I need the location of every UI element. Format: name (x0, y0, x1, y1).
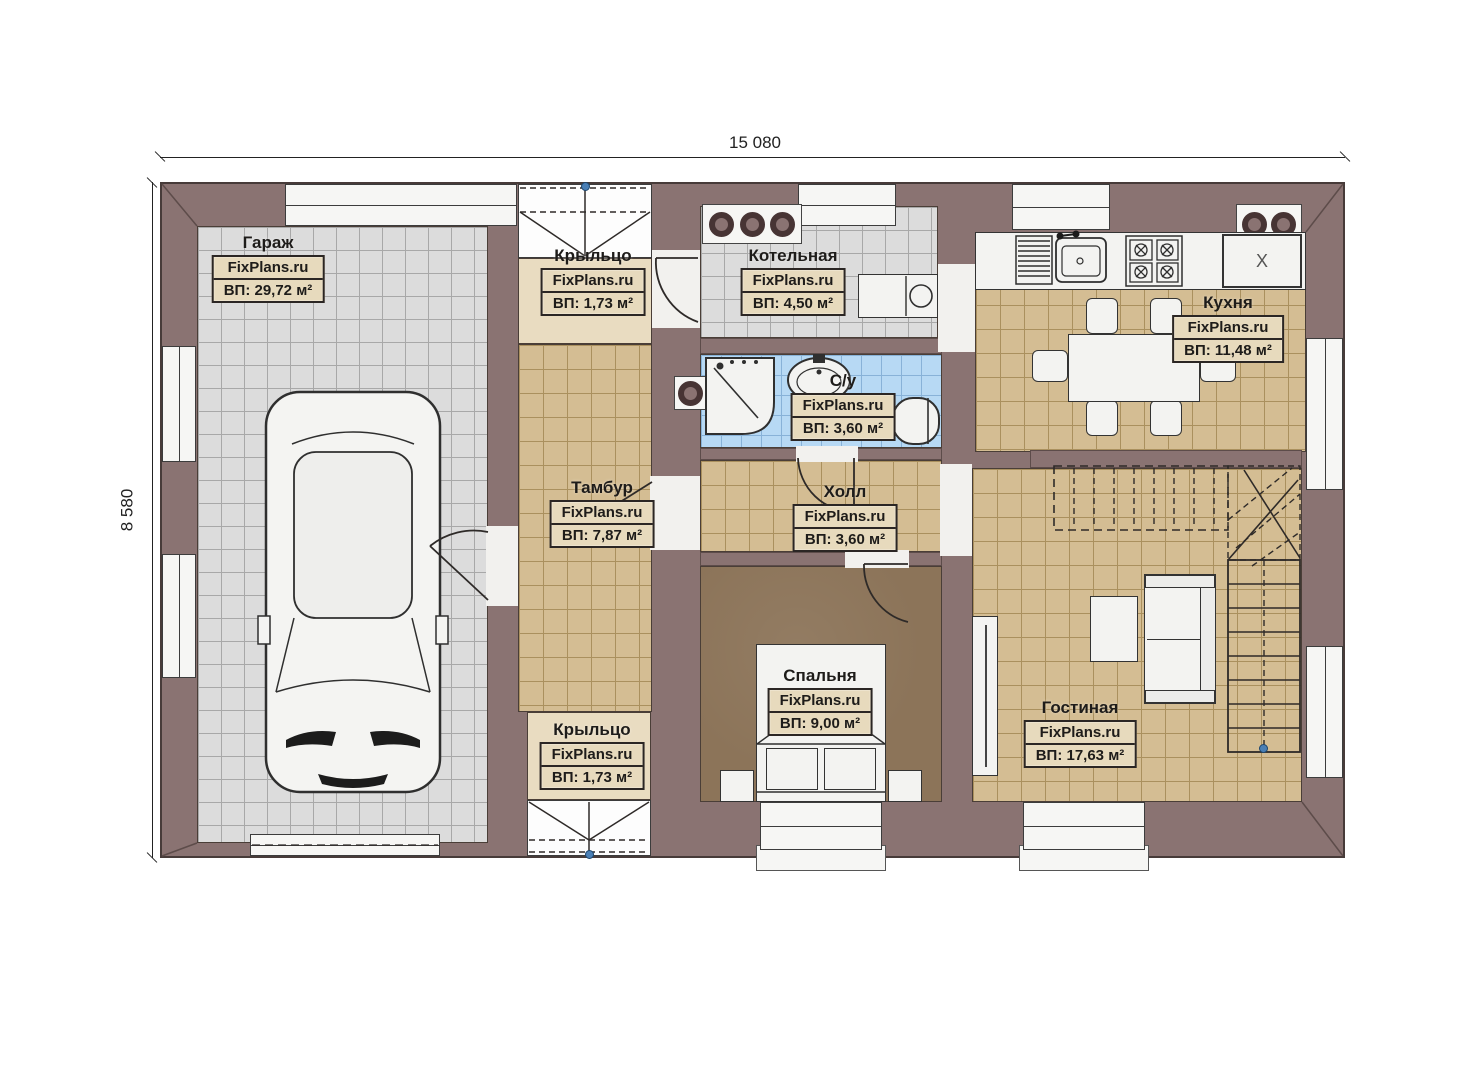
vent-icon (770, 212, 795, 237)
room-name: Крыльцо (540, 720, 645, 740)
dimension-line-top (160, 157, 1345, 158)
vent-icon (709, 212, 734, 237)
watermark: FixPlans.ru (795, 506, 896, 527)
pillow (766, 748, 818, 790)
doorway-bedroom (845, 550, 909, 568)
room-label-kitchen: Кухня FixPlans.ru ВП: 11,48 м² (1172, 293, 1284, 363)
pillow (824, 748, 876, 790)
room-label-living: Гостиная FixPlans.ru ВП: 17,63 м² (1024, 698, 1137, 768)
room-label-garage: Гараж FixPlans.ru ВП: 29,72 м² (212, 233, 325, 303)
room-label-bedroom: Спальня FixPlans.ru ВП: 9,00 м² (768, 666, 873, 736)
stair-marker (585, 850, 594, 859)
chair (1032, 350, 1068, 382)
room-name: Кухня (1172, 293, 1284, 313)
doorway-entry (652, 250, 700, 328)
room-area: ВП: 1,73 м² (542, 765, 643, 788)
window-garage-left-2 (162, 554, 196, 678)
sofa-armrest (1145, 690, 1215, 703)
room-name: Спальня (768, 666, 873, 686)
window-garage-top (285, 184, 517, 226)
window-living-bottom (1023, 802, 1145, 850)
room-area: ВП: 3,60 м² (795, 527, 896, 550)
watermark: FixPlans.ru (542, 744, 643, 765)
watermark: FixPlans.ru (770, 690, 871, 711)
room-label-porch-top: Крыльцо FixPlans.ru ВП: 1,73 м² (541, 246, 646, 316)
window-kitchen-right (1306, 338, 1343, 490)
window-boiler-top (798, 184, 896, 226)
room-label-bathroom: С/у FixPlans.ru ВП: 3,60 м² (791, 371, 896, 441)
watermark: FixPlans.ru (543, 270, 644, 291)
room-area: ВП: 4,50 м² (743, 291, 844, 314)
sofa-back (1200, 575, 1215, 703)
wall-boiler-bathroom (700, 338, 942, 354)
coffee-table (1090, 596, 1138, 662)
room-area: ВП: 17,63 м² (1026, 743, 1135, 766)
fridge: X (1222, 234, 1302, 288)
room-label-boiler: Котельная FixPlans.ru ВП: 4,50 м² (741, 246, 846, 316)
room-name: Гостиная (1024, 698, 1137, 718)
dimension-width-label: 15 080 (700, 133, 810, 153)
tv-panel (972, 616, 998, 776)
nightstand (720, 770, 754, 802)
window-kitchen-top (1012, 184, 1110, 230)
room-name: Котельная (741, 246, 846, 266)
watermark: FixPlans.ru (793, 395, 894, 416)
room-area: ВП: 29,72 м² (214, 278, 323, 301)
wall-kitchen-living (1030, 450, 1302, 468)
window-living-right (1306, 646, 1343, 778)
floor-plan: 15 080 8 580 (0, 0, 1473, 1080)
doorway-vestibule-hall (650, 476, 700, 550)
porch-bottom-stairs (527, 800, 651, 856)
doorway-garage (486, 526, 518, 606)
room-area: ВП: 1,73 м² (543, 291, 644, 314)
sofa-armrest (1145, 575, 1215, 588)
dimension-line-left (152, 182, 153, 858)
nightstand (888, 770, 922, 802)
boiler-equipment (858, 274, 938, 318)
room-name: Крыльцо (541, 246, 646, 266)
garage-door (250, 834, 440, 856)
stair-marker (581, 182, 590, 191)
sofa-seam (1147, 639, 1201, 640)
tv-panel-line (985, 625, 987, 767)
vent-icon (740, 212, 765, 237)
chair (1086, 400, 1118, 436)
stair-marker (1259, 744, 1268, 753)
room-area: ВП: 7,87 м² (552, 523, 653, 546)
watermark: FixPlans.ru (552, 502, 653, 523)
room-name: Тамбур (550, 478, 655, 498)
room-label-vestibule: Тамбур FixPlans.ru ВП: 7,87 м² (550, 478, 655, 548)
watermark: FixPlans.ru (214, 257, 323, 278)
doorway-bathroom (796, 446, 858, 462)
room-info-box: FixPlans.ru ВП: 3,60 м² (793, 504, 898, 552)
opening-hall-living (940, 464, 972, 556)
room-info-box: FixPlans.ru ВП: 29,72 м² (212, 255, 325, 303)
vent-block-boiler (702, 204, 802, 244)
room-info-box: FixPlans.ru ВП: 7,87 м² (550, 500, 655, 548)
room-info-box: FixPlans.ru ВП: 17,63 м² (1024, 720, 1137, 768)
sofa (1144, 574, 1216, 704)
room-info-box: FixPlans.ru ВП: 1,73 м² (541, 268, 646, 316)
room-name: Холл (793, 482, 898, 502)
room-area: ВП: 3,60 м² (793, 416, 894, 439)
vent-icon (678, 381, 703, 406)
room-area: ВП: 11,48 м² (1174, 338, 1282, 361)
room-area: ВП: 9,00 м² (770, 711, 871, 734)
chair (1086, 298, 1118, 334)
room-label-hall: Холл FixPlans.ru ВП: 3,60 м² (793, 482, 898, 552)
fridge-mark: X (1256, 251, 1268, 272)
window-garage-left-1 (162, 346, 196, 462)
chair (1150, 400, 1182, 436)
room-label-porch-bottom: Крыльцо FixPlans.ru ВП: 1,73 м² (540, 720, 645, 790)
dimension-height-label: 8 580 (117, 489, 137, 532)
room-info-box: FixPlans.ru ВП: 1,73 м² (540, 742, 645, 790)
room-info-box: FixPlans.ru ВП: 4,50 м² (741, 268, 846, 316)
watermark: FixPlans.ru (1026, 722, 1135, 743)
watermark: FixPlans.ru (1174, 317, 1282, 338)
room-info-box: FixPlans.ru ВП: 3,60 м² (791, 393, 896, 441)
room-info-box: FixPlans.ru ВП: 9,00 м² (768, 688, 873, 736)
garage-floor (197, 226, 488, 843)
room-name: Гараж (212, 233, 325, 253)
window-bedroom-bottom (760, 802, 882, 850)
opening-boiler-kitchen (938, 264, 975, 352)
room-info-box: FixPlans.ru ВП: 11,48 м² (1172, 315, 1284, 363)
room-name: С/у (791, 371, 896, 391)
watermark: FixPlans.ru (743, 270, 844, 291)
vent-block-hall (674, 376, 706, 410)
